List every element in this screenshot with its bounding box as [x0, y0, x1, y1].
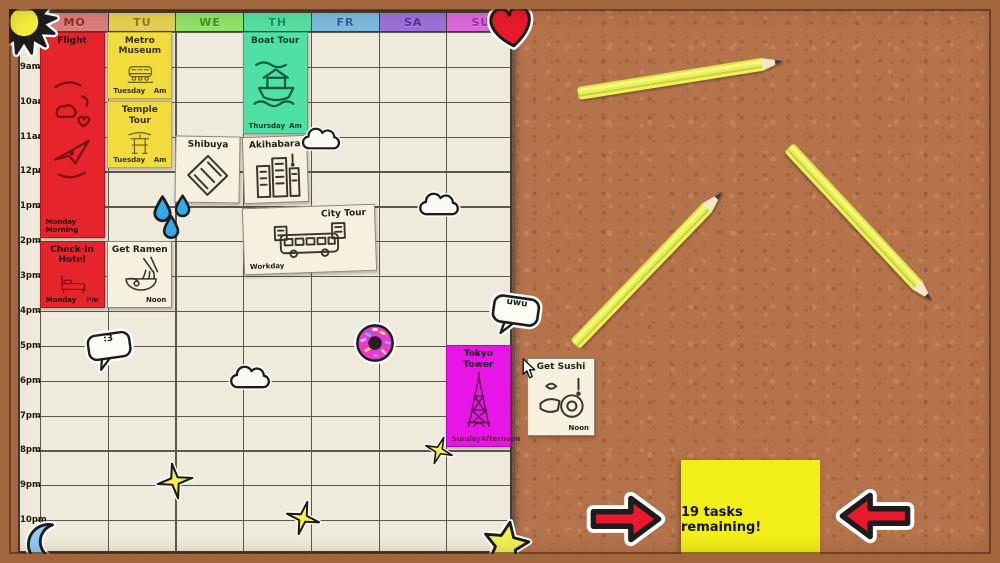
note-schedule-label: Noon [110, 296, 169, 306]
note-check-in-hotel[interactable]: Check-in Hotel MondayPm [40, 241, 105, 308]
note-title: Get Ramen [110, 243, 169, 255]
note-time-label: Noon [569, 424, 589, 432]
bus-sketch [245, 218, 373, 263]
grid-col-line [311, 32, 312, 553]
buildings-sketch [245, 149, 306, 202]
note-schedule-label: Noon [530, 424, 592, 434]
time-label: 1pm [20, 201, 37, 211]
grid-row-line [36, 555, 510, 556]
train-sketch [110, 56, 169, 87]
time-label: 7pm [20, 411, 37, 421]
speech-bubble-sticker: :3 [81, 324, 139, 381]
note-schedule-label: Monday Morning [43, 218, 102, 236]
note-schedule-label: ThursdayAm [246, 122, 305, 132]
note-boat-tour[interactable]: Boat Tour ThursdayAm [243, 32, 308, 134]
time-label: 12pm [20, 166, 37, 176]
note-day-label: Tuesday [113, 87, 145, 95]
note-title: Boat Tour [246, 34, 305, 46]
pencil [577, 55, 784, 100]
time-label: 8pm [20, 445, 37, 455]
pencil-body [577, 58, 763, 100]
arrow-sticker-left [584, 490, 668, 548]
plane-sketch [43, 46, 102, 218]
torii-sketch [110, 126, 169, 157]
time-label: 3pm [20, 271, 37, 281]
note-day-label: Monday Morning [46, 218, 99, 234]
time-label: 11am [20, 132, 37, 142]
time-label: 10am [20, 97, 37, 107]
note-time-label: Am [154, 87, 167, 95]
note-day-label: SundayAfternoon [452, 435, 521, 443]
heart-sticker [483, 0, 539, 53]
note-time-label: Am [154, 156, 167, 164]
ramen-sketch [110, 255, 169, 296]
note-temple-tour[interactable]: Temple Tour TuesdayAm [107, 101, 172, 168]
day-header-sa: SA [379, 12, 448, 32]
day-header-fr: FR [311, 12, 380, 32]
time-label: 9am [20, 62, 37, 72]
note-title: Check-in Hotel [43, 243, 102, 266]
note-title: Metro Museum [110, 34, 169, 57]
note-day-label: Workday [249, 262, 284, 271]
donut-sticker [354, 322, 396, 364]
note-title: Get Sushi [530, 360, 592, 372]
grid-col-line [379, 32, 380, 553]
note-day-label: Tuesday [113, 156, 145, 164]
note-day-label: Thursday [249, 122, 285, 130]
note-metro-museum[interactable]: Metro Museum TuesdayAm [107, 32, 172, 99]
star-sticker [474, 516, 538, 563]
time-label: 2pm [20, 236, 37, 246]
note-city-tour[interactable]: City Tour Workday [242, 204, 377, 276]
cloud-sticker [299, 124, 343, 155]
sushi-sketch [530, 372, 592, 424]
cloud-sticker [416, 189, 462, 221]
tasks-remaining-note: 19 tasks remaining! [681, 460, 820, 554]
cloud-sticker [227, 362, 273, 394]
note-schedule-label: TuesdayAm [110, 156, 169, 166]
note-tokyo-tower[interactable]: Tokyo Tower SundayAfternoon [446, 345, 511, 447]
grid-col-line [446, 32, 447, 553]
note-get-ramen[interactable]: Get Ramen Noon [107, 241, 172, 308]
pencil [570, 187, 727, 349]
pencil-body [570, 203, 711, 349]
note-schedule-label: MondayPm [43, 296, 102, 306]
bed-sketch [43, 265, 102, 296]
note-time-label: Noon [146, 296, 166, 304]
note-flight[interactable]: Flight Monday Morning [40, 32, 105, 239]
day-header-th: TH [243, 12, 312, 32]
tasks-remaining-text: 19 tasks remaining! [681, 479, 820, 535]
pencil [784, 143, 937, 305]
note-title: Temple Tour [110, 103, 169, 126]
sparkle-sticker [153, 457, 198, 505]
pencil-body [784, 143, 922, 289]
note-title: Shibuya [178, 138, 237, 151]
note-get-sushi[interactable]: Get Sushi Noon [527, 358, 595, 436]
tower-sketch [449, 370, 508, 435]
time-label: 5pm [20, 341, 37, 351]
moon-sticker [20, 522, 66, 563]
time-label: 6pm [20, 376, 37, 386]
time-label: 4pm [20, 306, 37, 316]
time-label: 9pm [20, 480, 37, 490]
day-header-tu: TU [108, 12, 177, 32]
cork-board: MOTUWETHFRSASU8am9am10am11am12pm1pm2pm3p… [0, 0, 1000, 563]
note-time-label: Pm [86, 296, 98, 304]
droplets-sticker [147, 192, 199, 238]
mouse-cursor [522, 358, 537, 379]
boat-sketch [246, 46, 305, 122]
pencil-tip [761, 55, 785, 71]
arrow-sticker-right [833, 487, 917, 545]
day-header-we: WE [175, 12, 244, 32]
note-schedule-label: TuesdayAm [110, 87, 169, 97]
note-day-label: Monday [46, 296, 77, 304]
sun-sticker [0, 0, 60, 58]
note-title: Tokyo Tower [449, 347, 508, 370]
speech-bubble-sticker: uwu [484, 287, 547, 346]
